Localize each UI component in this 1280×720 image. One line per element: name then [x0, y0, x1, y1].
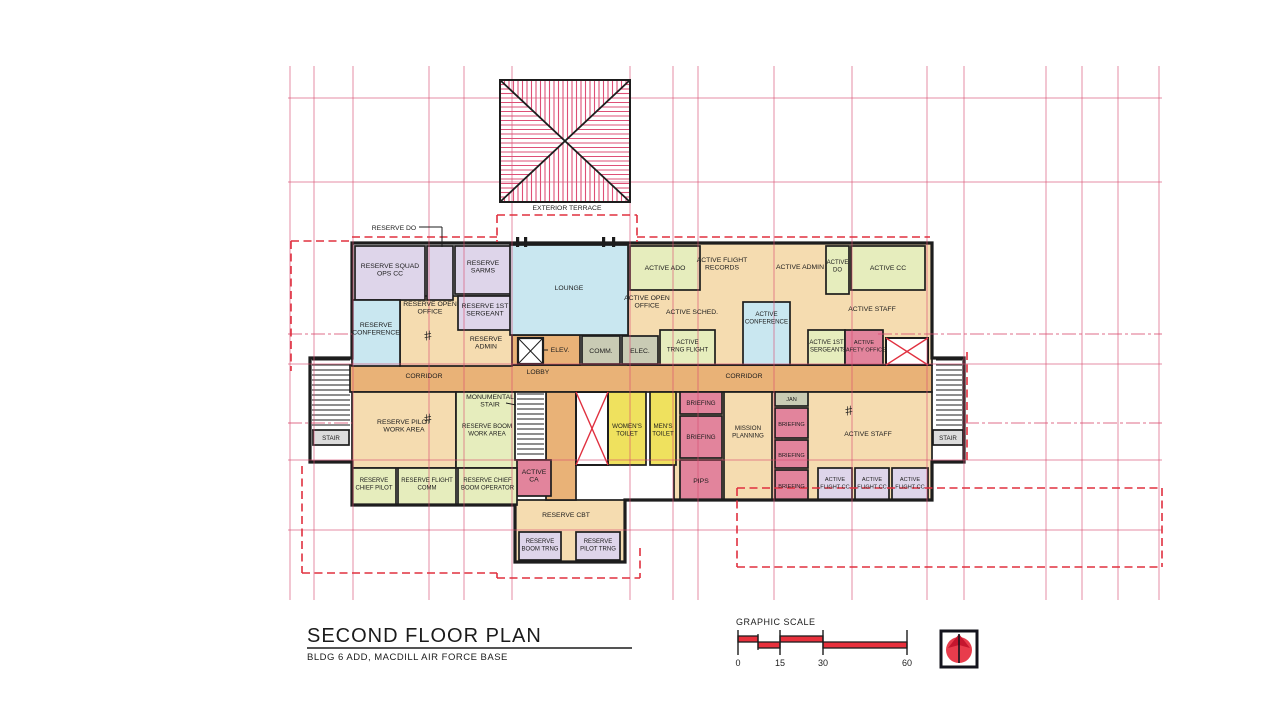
scale-bar-segment	[780, 636, 823, 642]
graphic-scale-label: GRAPHIC SCALE	[736, 617, 816, 627]
label-elev: ELEV.	[551, 347, 570, 354]
room-briefing-r1-label: BRIEFING	[778, 422, 804, 428]
floor-plan-canvas: RESERVE SQUADOPS CCRESERVESARMSRESERVECO…	[0, 0, 1280, 720]
room-briefing-r3-label: BRIEFING	[778, 484, 804, 490]
room-briefing-1-label: BRIEFING	[686, 400, 715, 407]
room-reserve-pilot-work-area-label: RESERVE PILOTWORK AREA	[377, 419, 431, 434]
room-active-cc-label: ACTIVE CC	[870, 265, 906, 272]
label-reserve-cbt: RESERVE CBT	[542, 512, 590, 519]
room-womens-toilet-label: WOMEN'STOILET	[612, 423, 642, 438]
room-reserve-1st-sergeant-label: RESERVE 1STSERGEANT	[462, 303, 509, 318]
stair-label-left-label: STAIR	[322, 435, 340, 442]
label-corridor-left: CORRIDOR	[405, 373, 442, 380]
scale-tick-label: 15	[775, 658, 785, 668]
room-mission-planning-label: MISSIONPLANNING	[732, 425, 764, 440]
room-reserve-chief-boom-operator-label: RESERVE CHIEFBOOM OPERATOR	[461, 478, 515, 492]
drawing-title: SECOND FLOOR PLAN	[307, 625, 542, 647]
room-fills-layer	[313, 243, 963, 562]
room-jan-label: JAN	[786, 397, 797, 403]
scale-bar-segment	[738, 636, 758, 642]
scale-bar-segment	[758, 642, 780, 648]
label-active-admin: ACTIVE ADMIN	[776, 264, 824, 271]
door-frame-mark	[524, 237, 527, 247]
room-reserve-boom-trng-label: RESERVEBOOM TRNG	[522, 539, 559, 553]
door-frame-mark	[612, 237, 615, 247]
scale-bar-segment	[823, 642, 907, 648]
room-mens-toilet-label: MEN'STOILET	[652, 423, 674, 438]
scale-tick-label: 0	[735, 658, 740, 668]
room-briefing-r2-label: BRIEFING	[778, 453, 804, 459]
room-pips-label: PIPS	[693, 478, 709, 485]
scale-tick-label: 60	[902, 658, 912, 668]
title-block: SECOND FLOOR PLAN BLDG 6 ADD, MACDILL AI…	[307, 625, 632, 663]
scale-tick-label: 30	[818, 658, 828, 668]
room-mission-planning	[724, 392, 772, 500]
room-reserve-boom-work-area-label: RESERVE BOOMWORK AREA	[462, 423, 512, 438]
room-active-1st-sergeant-label: ACTIVE 1STSERGEANT	[809, 340, 844, 354]
graphic-scale: GRAPHIC SCALE 0153060	[735, 617, 912, 668]
room-reserve-do	[427, 246, 453, 300]
room-briefing-2-label: BRIEFING	[686, 434, 715, 441]
label-reserve-do: RESERVE DO	[372, 225, 416, 232]
monumental-stair-well	[515, 392, 546, 460]
room-active-ado-label: ACTIVE ADO	[645, 265, 686, 272]
drawing-subtitle: BLDG 6 ADD, MACDILL AIR FORCE BASE	[307, 652, 508, 663]
stair-label-right-label: STAIR	[939, 435, 957, 442]
label-active-sched: ACTIVE SCHED.	[666, 309, 718, 316]
label-corridor-right: CORRIDOR	[725, 373, 762, 380]
north-arrow-icon	[941, 631, 977, 667]
graphic-scale-bar: 0153060	[735, 630, 912, 668]
room-reserve-chief-pilot-label: RESERVECHIEF PILOT	[355, 478, 392, 492]
room-lounge-label: LOUNGE	[555, 285, 584, 292]
room-comm-label: COMM.	[589, 348, 613, 355]
label-exterior-terrace: EXTERIOR TERRACE	[533, 205, 602, 212]
room-reserve-pilot-trng-label: RESERVEPILOT TRNG	[580, 539, 616, 553]
room-elec-label: ELEC.	[630, 348, 650, 355]
label-lobby: LOBBY	[527, 369, 550, 376]
label-active-staff-bottom: ACTIVE STAFF	[844, 431, 891, 438]
door-frame-mark	[516, 237, 519, 247]
door-frame-mark	[602, 237, 605, 247]
room-reserve-sarms-label: RESERVESARMS	[467, 260, 500, 275]
label-active-staff-top: ACTIVE STAFF	[848, 306, 895, 313]
floor-plan-sheet: RESERVE SQUADOPS CCRESERVESARMSRESERVECO…	[0, 0, 1280, 720]
